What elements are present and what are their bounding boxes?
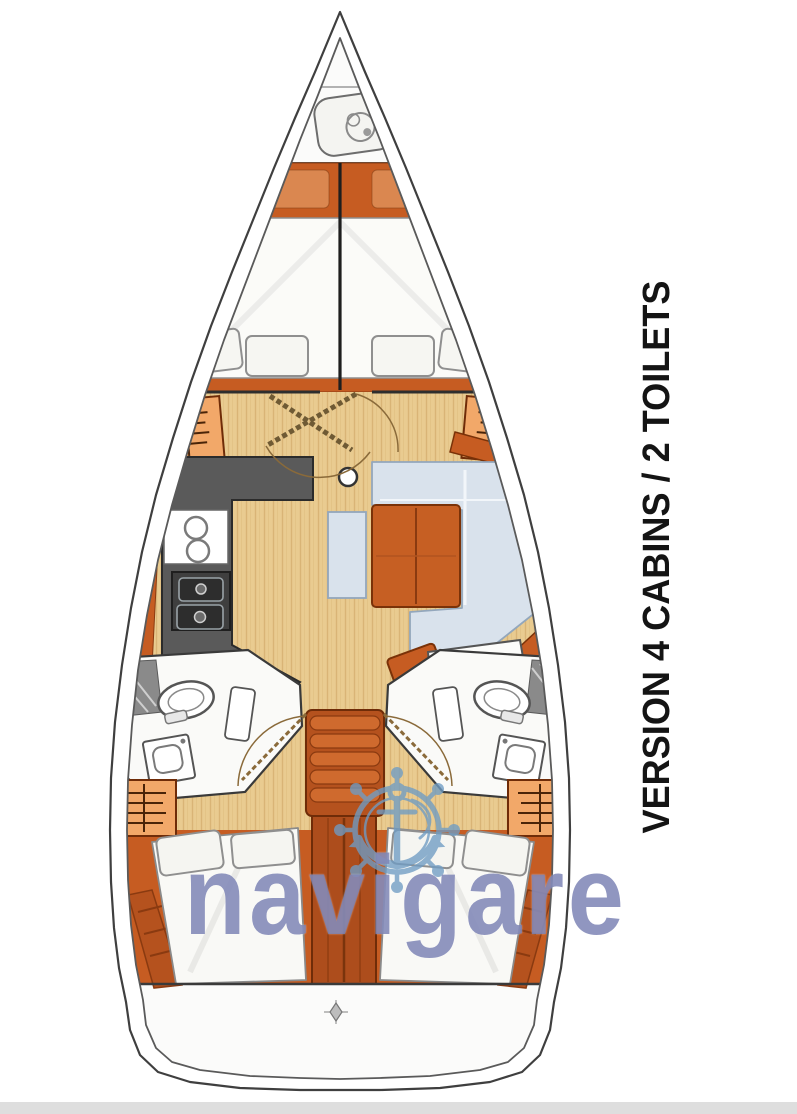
deck-plan-page: navigare VERSION 4 CABINS / 2 TOILETS (0, 0, 797, 1114)
salon-bench (328, 512, 366, 598)
washbasin-icon (493, 734, 546, 785)
version-label: VERSION 4 CABINS / 2 TOILETS (633, 272, 681, 842)
galley-sink-icon (164, 510, 228, 564)
washbasin-icon (143, 734, 196, 785)
companionway-stairs-icon (306, 710, 384, 816)
side-trim-starboard (528, 394, 566, 472)
bottom-edge (0, 1102, 797, 1114)
watermark-text: navigare (184, 840, 627, 952)
stove-burners-icon (172, 572, 230, 630)
